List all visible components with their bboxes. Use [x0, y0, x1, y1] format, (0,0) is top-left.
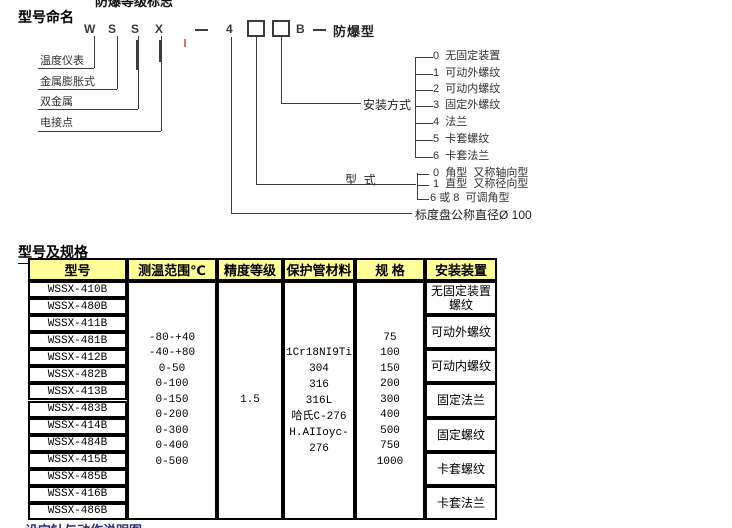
table-install-device-cell: 卡套螺纹 [425, 452, 497, 486]
type-option-tick [417, 174, 429, 175]
table-header-cell: 精度等级 [217, 258, 283, 281]
label-underline [38, 89, 117, 90]
code-part-label: 金属膨胀式 [40, 76, 95, 89]
table-header-cell: 安装装置 [425, 258, 497, 281]
code-box-2 [272, 20, 290, 37]
table-header-cell: 测温范围℃ [127, 258, 217, 281]
code-letter: W [84, 22, 95, 36]
type-bracket-line [417, 173, 418, 200]
table-install-device-cell: 固定法兰 [425, 383, 497, 417]
section-title-model-naming: 型号命名 [18, 7, 74, 27]
bold-stroke [159, 40, 162, 62]
table-model-cell: WSSX-480B [28, 298, 127, 315]
install-option-tick [415, 140, 433, 141]
type-option: 1 直型 又称径向型 [433, 178, 528, 191]
table-header-cell: 保护管材料 [283, 258, 355, 281]
code-suffix-letter: B [296, 22, 305, 36]
clipped-top-text: 防爆等级标志 [95, 0, 173, 10]
table-material-cell: 1Cr18NI9Ti 304 316 316L 哈氏C-276 H.AIIoyc… [283, 281, 355, 520]
install-option-tick [415, 57, 433, 58]
install-option-tick [415, 90, 433, 91]
table-model-cell: WSSX-482B [28, 366, 127, 383]
scan-artifact-mark [184, 39, 186, 47]
install-option-tick [415, 74, 433, 75]
table-model-cell: WSSX-484B [28, 435, 127, 452]
install-option-tick [415, 106, 433, 107]
table-model-cell: WSSX-410B [28, 281, 127, 298]
code-part-label: 温度仪表 [40, 55, 84, 68]
table-model-cell: WSSX-414B [28, 418, 127, 435]
digit-drop-line [231, 37, 232, 213]
table-header-cell: 规 格 [355, 258, 425, 281]
table-install-device-cell: 卡套法兰 [425, 486, 497, 520]
code-part-label: 电接点 [40, 117, 73, 130]
table-install-device-cell: 可动内螺纹 [425, 349, 497, 383]
install-option: 6 卡套法兰 [433, 150, 489, 163]
install-option-tick [415, 157, 433, 158]
explosion-proof-label: 防爆型 [333, 21, 375, 40]
type-option-tick [417, 199, 429, 200]
code-dash-2 [313, 29, 326, 31]
label-underline [38, 131, 161, 132]
table-install-device-cell: 固定螺纹 [425, 418, 497, 452]
label-underline [38, 68, 94, 69]
code-letter: S [108, 22, 116, 36]
install-option: 5 卡套螺纹 [433, 133, 489, 146]
table-model-cell: WSSX-486B [28, 503, 127, 520]
dial-diameter-note: 标度盘公称直径Ø 100 [415, 206, 532, 223]
install-option: 3 固定外螺纹 [433, 99, 500, 112]
box1-drop-line [256, 37, 257, 184]
table-spec-cell: 75 100 150 200 300 400 500 750 1000 [355, 281, 425, 520]
type-horizontal-line [256, 184, 416, 185]
label-underline [38, 109, 138, 110]
table-model-cell: WSSX-485B [28, 469, 127, 486]
code-dash-1 [195, 29, 208, 31]
code-digit: 4 [226, 22, 233, 36]
install-method-label: 安装方式 [363, 96, 411, 113]
table-header-cell: 型号 [28, 258, 127, 281]
clipped-bottom-text: 设定针与动作说明图 [25, 520, 142, 528]
code-letter: S [131, 22, 139, 36]
table-model-cell: WSSX-483B [28, 401, 127, 418]
table-install-device-cell: 无固定装置螺纹 [425, 281, 497, 315]
type-option-tick [417, 185, 429, 186]
install-bracket-line [415, 57, 416, 158]
code-part-label: 双金属 [40, 96, 73, 109]
dial-horizontal-line [231, 213, 412, 214]
document-page: 防爆等级标志 型号命名 4 B 防爆型 安装方式 型 式 标度盘公称直径Ø 10… [0, 0, 732, 528]
letter-drop-line [94, 36, 95, 68]
install-option: 0 无固定装置 [433, 50, 500, 63]
type-option: 6 或 8 可调角型 [430, 192, 509, 205]
type-label: 型 式 [345, 171, 376, 188]
table-temp-range-cell: -80-+40 -40-+80 0-50 0-100 0-150 0-200 0… [127, 281, 217, 520]
table-model-cell: WSSX-413B [28, 383, 127, 400]
letter-drop-line [117, 36, 118, 89]
code-letter: X [155, 22, 163, 36]
install-horizontal-line [281, 103, 361, 104]
box2-drop-line [281, 37, 282, 103]
bold-stroke [136, 40, 139, 70]
table-model-cell: WSSX-416B [28, 486, 127, 503]
table-model-cell: WSSX-411B [28, 315, 127, 332]
install-option: 2 可动内螺纹 [433, 83, 500, 96]
code-box-1 [247, 20, 265, 37]
table-model-cell: WSSX-412B [28, 349, 127, 366]
table-model-cell: WSSX-415B [28, 452, 127, 469]
table-accuracy-cell: 1.5 [217, 281, 283, 520]
install-option: 4 法兰 [433, 116, 467, 129]
table-install-device-cell: 可动外螺纹 [425, 315, 497, 349]
install-option: 1 可动外螺纹 [433, 67, 500, 80]
table-model-cell: WSSX-481B [28, 332, 127, 349]
install-option-tick [415, 123, 433, 124]
